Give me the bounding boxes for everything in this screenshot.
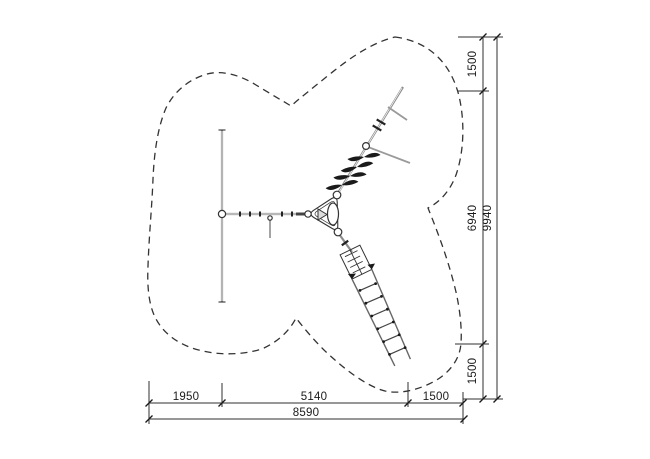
climbing-steps <box>325 142 380 199</box>
equipment <box>218 87 410 366</box>
hub-joint-top <box>333 191 341 199</box>
swing-arm-end-joint <box>218 210 225 217</box>
dim-right-overall-height: 9940 <box>482 205 494 231</box>
dim-right-top-clearance: 1500 <box>467 51 479 77</box>
central-hub <box>305 191 342 236</box>
ladder-rail-left <box>352 279 395 366</box>
climbing-arm <box>325 87 410 199</box>
dim-right-bottom-clearance: 1500 <box>467 358 479 384</box>
drawing-canvas: 1500 6940 1500 9940 1950 5140 1500 8590 <box>0 0 650 459</box>
right-dimensions: 1500 6940 1500 9940 <box>455 34 503 403</box>
swing-arm <box>218 130 306 302</box>
ladder-rail-right <box>372 269 411 359</box>
ladder-arm <box>339 234 410 366</box>
plan-drawing: 1500 6940 1500 9940 1950 5140 1500 8590 <box>0 0 650 459</box>
climbing-arm-mid-joint <box>363 143 370 150</box>
dim-bottom-left-clearance: 1950 <box>173 391 199 403</box>
dim-bottom-equipment-extent: 5140 <box>301 391 327 403</box>
stub-joint <box>268 216 272 220</box>
hub-joint-bottom <box>334 228 342 236</box>
hub-pointer <box>318 209 327 220</box>
dim-right-equipment-extent: 6940 <box>467 205 479 231</box>
hub-basket <box>328 203 339 225</box>
ladder <box>352 269 410 366</box>
dim-bottom-right-clearance: 1500 <box>423 391 449 403</box>
cross-beam-short <box>388 107 407 120</box>
ladder-platform <box>340 245 375 279</box>
hub-joint-left <box>305 211 311 217</box>
dim-bottom-overall-width: 8590 <box>293 407 319 419</box>
